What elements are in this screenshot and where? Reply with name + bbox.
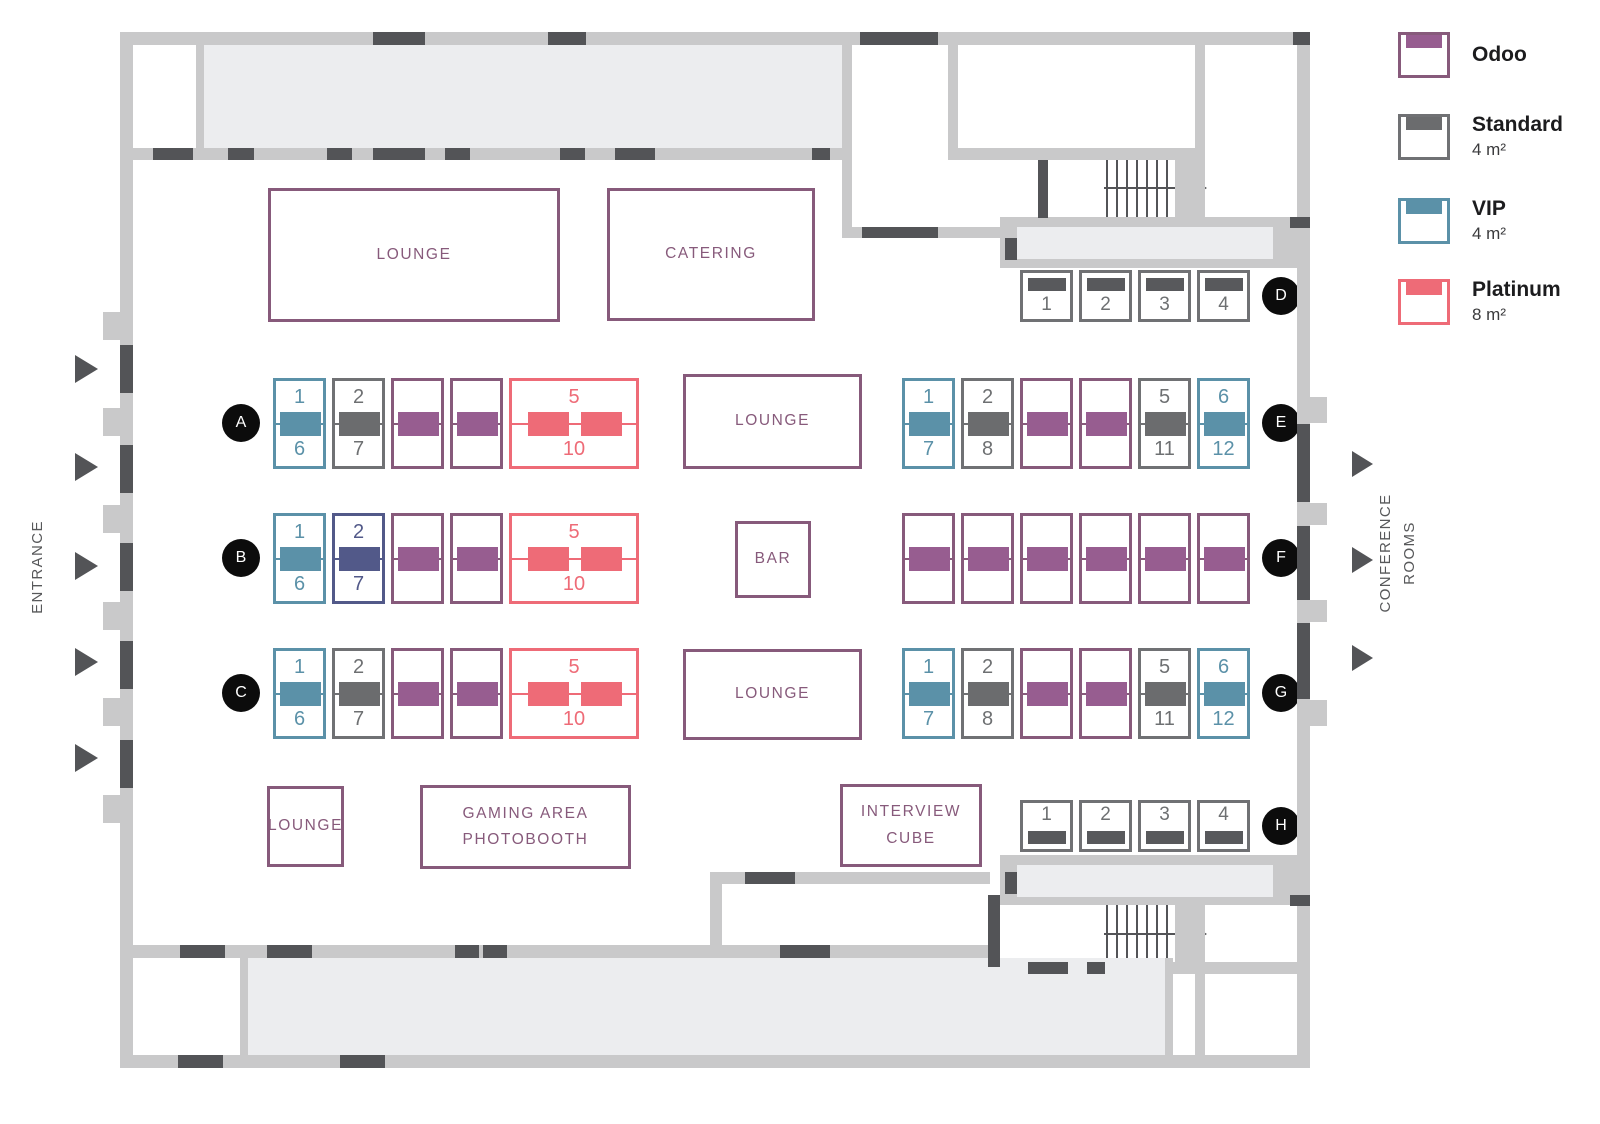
booth-number-bottom: 10 xyxy=(512,438,636,461)
row-letter: H xyxy=(1275,817,1287,835)
room-area xyxy=(204,45,842,148)
booth-bar xyxy=(1145,547,1186,571)
booth-row-f-1[interactable] xyxy=(902,513,955,604)
wall-segment xyxy=(1297,503,1327,525)
row-badge-g: G xyxy=(1262,674,1300,712)
booth-bar xyxy=(1146,278,1184,291)
stairs-top-icon xyxy=(1106,160,1178,218)
conference-text-line1: CONFERENCE xyxy=(1374,493,1398,612)
wall-segment xyxy=(103,795,133,823)
legend-booth-bar xyxy=(1406,117,1442,130)
door-segment xyxy=(988,895,1000,967)
booth-number: 1 xyxy=(1023,294,1070,316)
wall-segment xyxy=(1297,397,1327,423)
door-segment xyxy=(780,945,830,958)
booth-number-bottom: 7 xyxy=(335,708,382,731)
booth-bar xyxy=(1204,547,1245,571)
booth-bar xyxy=(968,682,1009,706)
row-badge-a: A xyxy=(222,404,260,442)
booth-bar xyxy=(581,412,622,436)
area-label: LOUNGE xyxy=(735,408,810,434)
booth-number-bottom: 8 xyxy=(964,708,1011,731)
booth-row-a-1[interactable]: 16 xyxy=(273,378,326,469)
row-badge-f: F xyxy=(1262,539,1300,577)
booth-row-c-4[interactable] xyxy=(450,648,503,739)
door-segment xyxy=(1038,160,1048,218)
booth-bar xyxy=(1146,831,1184,844)
door-segment xyxy=(1005,872,1017,894)
booth-number-bottom: 11 xyxy=(1141,438,1188,461)
door-segment xyxy=(1293,32,1310,45)
wall-segment xyxy=(1297,600,1327,622)
entrance-arrow-icon xyxy=(75,552,98,580)
booth-number-bottom: 12 xyxy=(1200,438,1247,461)
booth-row-a-4[interactable] xyxy=(450,378,503,469)
booth-bar xyxy=(339,412,380,436)
booth-number: 4 xyxy=(1200,804,1247,826)
booth-row-b-1[interactable]: 16 xyxy=(273,513,326,604)
booth-row-b-5[interactable]: 510 xyxy=(509,513,639,604)
legend-text: VIP 4 m² xyxy=(1472,197,1506,244)
booth-bar xyxy=(1204,682,1245,706)
booth-bar xyxy=(398,412,439,436)
booth-number-top: 2 xyxy=(964,656,1011,679)
booth-bar xyxy=(1086,547,1127,571)
conference-rooms-label: CONFERENCE ROOMS xyxy=(1374,493,1422,612)
legend-text: Platinum 8 m² xyxy=(1472,278,1561,325)
wall-segment xyxy=(1297,700,1327,726)
booth-number-bottom: 11 xyxy=(1141,708,1188,731)
legend-size: 8 m² xyxy=(1472,305,1561,325)
booth-bar xyxy=(968,547,1009,571)
booth-row-a-2[interactable]: 27 xyxy=(332,378,385,469)
booth-number-bottom: 12 xyxy=(1200,708,1247,731)
room-area xyxy=(1017,865,1273,897)
conference-arrow-icon xyxy=(1352,645,1373,671)
entrance-arrow-icon xyxy=(75,453,98,481)
booth-number-top: 5 xyxy=(512,656,636,679)
booth-row-g-1[interactable]: 17 xyxy=(902,648,955,739)
booth-row-g-2[interactable]: 28 xyxy=(961,648,1014,739)
area-label: LOUNGE xyxy=(268,813,343,839)
entrance-arrow-icon xyxy=(75,648,98,676)
wall-segment xyxy=(120,945,990,958)
row-letter: B xyxy=(236,549,247,567)
wall-segment xyxy=(103,408,133,436)
door-segment xyxy=(267,945,312,958)
booth-row-f-6[interactable] xyxy=(1197,513,1250,604)
booth-bar xyxy=(909,412,950,436)
area-label: CUBE xyxy=(886,826,935,852)
area-label: GAMING AREA xyxy=(462,801,588,827)
booth-number-top: 5 xyxy=(1141,386,1188,409)
area-lounge-top: LOUNGE xyxy=(268,188,560,322)
booth-row-f-5[interactable] xyxy=(1138,513,1191,604)
booth-row-d-4[interactable]: 4 xyxy=(1197,270,1250,322)
door-segment xyxy=(180,945,225,958)
booth-bar xyxy=(1086,412,1127,436)
row-badge-e: E xyxy=(1262,404,1300,442)
entrance-arrow-icon xyxy=(75,355,98,383)
door-segment xyxy=(228,148,254,160)
booth-bar xyxy=(339,682,380,706)
booth-number-top: 6 xyxy=(1200,386,1247,409)
booth-bar xyxy=(528,682,569,706)
booth-number: 4 xyxy=(1200,294,1247,316)
booth-row-g-3[interactable] xyxy=(1020,648,1073,739)
booth-row-b-4[interactable] xyxy=(450,513,503,604)
door-segment xyxy=(340,1055,385,1068)
area-bar: BAR xyxy=(735,521,811,598)
row-badge-b: B xyxy=(222,539,260,577)
door-segment xyxy=(373,148,425,160)
booth-number-top: 1 xyxy=(276,656,323,679)
booth-bar xyxy=(1205,831,1243,844)
area-gaming-photobooth: GAMING AREA PHOTOBOOTH xyxy=(420,785,631,869)
booth-row-b-2[interactable]: 27 xyxy=(332,513,385,604)
entrance-text: ENTRANCE xyxy=(26,520,50,614)
booth-bar xyxy=(1204,412,1245,436)
legend-name: Odoo xyxy=(1472,43,1527,67)
door-segment xyxy=(120,345,133,393)
row-badge-c: C xyxy=(222,674,260,712)
area-label: LOUNGE xyxy=(735,681,810,707)
booth-number-top: 1 xyxy=(905,386,952,409)
booth-number-bottom: 7 xyxy=(905,708,952,731)
door-segment xyxy=(812,148,830,160)
wall-segment xyxy=(1175,905,1205,962)
booth-number-bottom: 6 xyxy=(276,708,323,731)
legend-size: 4 m² xyxy=(1472,140,1563,160)
conference-text-line2: ROOMS xyxy=(1398,493,1422,612)
door-segment xyxy=(1297,623,1310,699)
booth-number: 3 xyxy=(1141,294,1188,316)
row-letter: E xyxy=(1276,414,1287,432)
booth-row-c-1[interactable]: 16 xyxy=(273,648,326,739)
booth-row-g-4[interactable] xyxy=(1079,648,1132,739)
booth-number-top: 2 xyxy=(335,521,382,544)
floor-plan-canvas: LOUNGE CATERING LOUNGE BAR LOUNGE LOUNGE… xyxy=(0,0,1600,1124)
door-segment xyxy=(560,148,585,160)
booth-number-top: 5 xyxy=(1141,656,1188,679)
booth-row-d-1[interactable]: 1 xyxy=(1020,270,1073,322)
booth-number-bottom: 8 xyxy=(964,438,1011,461)
legend-booth-bar xyxy=(1406,35,1442,48)
area-lounge-small: LOUNGE xyxy=(267,786,344,867)
area-label: CATERING xyxy=(665,241,757,267)
wall-segment xyxy=(120,32,1310,45)
wall-segment xyxy=(948,148,1205,160)
booth-bar xyxy=(1205,278,1243,291)
booth-bar xyxy=(1087,831,1125,844)
booth-bar xyxy=(1028,278,1066,291)
legend-name: Platinum xyxy=(1472,278,1561,302)
wall-segment xyxy=(948,45,958,160)
booth-row-e-1[interactable]: 17 xyxy=(902,378,955,469)
legend-booth-icon xyxy=(1398,114,1450,160)
row-letter: A xyxy=(236,414,247,432)
booth-number: 2 xyxy=(1082,804,1129,826)
conference-arrow-icon xyxy=(1352,451,1373,477)
door-segment xyxy=(483,945,507,958)
booth-row-h-2[interactable]: 2 xyxy=(1079,800,1132,852)
booth-bar xyxy=(280,547,321,571)
row-letter: C xyxy=(235,684,247,702)
booth-row-h-1[interactable]: 1 xyxy=(1020,800,1073,852)
door-segment xyxy=(120,543,133,591)
legend-booth-bar xyxy=(1406,282,1442,295)
booth-row-c-5[interactable]: 510 xyxy=(509,648,639,739)
legend-booth-bar xyxy=(1406,201,1442,214)
booth-bar xyxy=(1027,682,1068,706)
area-lounge-mid: LOUNGE xyxy=(683,374,862,469)
wall-segment xyxy=(103,698,133,726)
legend-booth-icon xyxy=(1398,279,1450,325)
door-segment xyxy=(1087,962,1105,974)
booth-bar xyxy=(968,412,1009,436)
booth-row-g-5[interactable]: 511 xyxy=(1138,648,1191,739)
row-letter: G xyxy=(1275,684,1287,702)
entrance-arrow-icon xyxy=(75,744,98,772)
booth-number-bottom: 7 xyxy=(335,438,382,461)
booth-row-e-6[interactable]: 612 xyxy=(1197,378,1250,469)
booth-bar xyxy=(280,682,321,706)
booth-number-top: 2 xyxy=(335,386,382,409)
area-interview-cube: INTERVIEW CUBE xyxy=(840,784,982,867)
legend-booth-icon xyxy=(1398,32,1450,78)
booth-row-a-5[interactable]: 510 xyxy=(509,378,639,469)
row-letter: F xyxy=(1276,549,1286,567)
row-badge-d: D xyxy=(1262,277,1300,315)
legend-name: VIP xyxy=(1472,197,1506,221)
door-segment xyxy=(862,227,938,238)
booth-row-d-3[interactable]: 3 xyxy=(1138,270,1191,322)
door-segment xyxy=(1290,895,1310,906)
booth-row-c-3[interactable] xyxy=(391,648,444,739)
booth-bar xyxy=(1027,412,1068,436)
booth-row-d-2[interactable]: 2 xyxy=(1079,270,1132,322)
wall-segment xyxy=(1175,150,1205,218)
area-catering: CATERING xyxy=(607,188,815,321)
door-segment xyxy=(1297,526,1310,600)
booth-number-top: 5 xyxy=(512,386,636,409)
wall-segment xyxy=(103,312,133,340)
booth-number-top: 1 xyxy=(276,521,323,544)
booth-number-top: 5 xyxy=(512,521,636,544)
booth-bar xyxy=(1027,547,1068,571)
legend-item-vip: VIP 4 m² xyxy=(1398,197,1506,244)
booth-row-h-4[interactable]: 4 xyxy=(1197,800,1250,852)
door-segment xyxy=(445,148,470,160)
booth-bar xyxy=(457,412,498,436)
booth-bar xyxy=(1145,412,1186,436)
wall-segment xyxy=(1165,958,1173,1055)
wall-segment xyxy=(710,884,722,945)
booth-row-e-4[interactable] xyxy=(1079,378,1132,469)
booth-bar xyxy=(909,682,950,706)
area-label: BAR xyxy=(755,546,792,572)
door-segment xyxy=(455,945,479,958)
wall-segment xyxy=(103,602,133,630)
booth-row-a-3[interactable] xyxy=(391,378,444,469)
door-segment xyxy=(1028,962,1068,974)
entrance-label: ENTRANCE xyxy=(26,520,50,614)
booth-number-bottom: 6 xyxy=(276,438,323,461)
booth-row-e-2[interactable]: 28 xyxy=(961,378,1014,469)
booth-row-b-3[interactable] xyxy=(391,513,444,604)
door-segment xyxy=(120,641,133,689)
booth-row-f-2[interactable] xyxy=(961,513,1014,604)
booth-number-bottom: 7 xyxy=(905,438,952,461)
legend-text: Standard 4 m² xyxy=(1472,113,1563,160)
booth-row-e-5[interactable]: 511 xyxy=(1138,378,1191,469)
legend-item-platinum: Platinum 8 m² xyxy=(1398,278,1561,325)
booth-bar xyxy=(457,682,498,706)
door-segment xyxy=(860,32,938,45)
booth-row-f-4[interactable] xyxy=(1079,513,1132,604)
door-segment xyxy=(120,740,133,788)
booth-number-top: 6 xyxy=(1200,656,1247,679)
conference-arrow-icon xyxy=(1352,547,1373,573)
door-segment xyxy=(1005,238,1017,260)
booth-bar xyxy=(339,547,380,571)
booth-bar xyxy=(909,547,950,571)
booth-number-top: 1 xyxy=(276,386,323,409)
booth-bar xyxy=(581,547,622,571)
legend-name: Standard xyxy=(1472,113,1563,137)
legend-item-odoo: Odoo xyxy=(1398,32,1527,78)
booth-row-h-3[interactable]: 3 xyxy=(1138,800,1191,852)
door-segment xyxy=(548,32,586,45)
door-segment xyxy=(178,1055,223,1068)
row-badge-h: H xyxy=(1262,807,1300,845)
booth-number: 2 xyxy=(1082,294,1129,316)
legend-text: Odoo xyxy=(1472,43,1527,67)
booth-number-bottom: 6 xyxy=(276,573,323,596)
door-segment xyxy=(120,445,133,493)
booth-row-f-3[interactable] xyxy=(1020,513,1073,604)
door-segment xyxy=(373,32,425,45)
booth-number-bottom: 10 xyxy=(512,573,636,596)
door-segment xyxy=(327,148,352,160)
booth-number-bottom: 7 xyxy=(335,573,382,596)
booth-number-top: 2 xyxy=(335,656,382,679)
booth-bar xyxy=(280,412,321,436)
booth-bar xyxy=(1028,831,1066,844)
booth-row-g-6[interactable]: 612 xyxy=(1197,648,1250,739)
booth-number: 1 xyxy=(1023,804,1070,826)
row-letter: D xyxy=(1275,287,1287,305)
wall-segment xyxy=(240,958,248,1055)
booth-bar xyxy=(581,682,622,706)
room-area xyxy=(1017,227,1273,259)
booth-bar xyxy=(398,682,439,706)
wall-segment xyxy=(196,45,204,148)
wall-segment xyxy=(842,45,852,237)
booth-bar xyxy=(1145,682,1186,706)
legend-size: 4 m² xyxy=(1472,224,1506,244)
area-label: INTERVIEW xyxy=(861,799,961,825)
wall-segment xyxy=(103,505,133,533)
booth-number-top: 2 xyxy=(964,386,1011,409)
door-segment xyxy=(745,872,795,884)
booth-row-e-3[interactable] xyxy=(1020,378,1073,469)
door-segment xyxy=(1290,217,1310,228)
area-label: PHOTOBOOTH xyxy=(463,827,589,853)
booth-number: 3 xyxy=(1141,804,1188,826)
wall-segment xyxy=(120,1055,1310,1068)
door-segment xyxy=(615,148,655,160)
legend-booth-icon xyxy=(1398,198,1450,244)
booth-bar xyxy=(457,547,498,571)
booth-row-c-2[interactable]: 27 xyxy=(332,648,385,739)
booth-bar xyxy=(528,412,569,436)
booth-bar xyxy=(1086,682,1127,706)
booth-number-bottom: 10 xyxy=(512,708,636,731)
booth-bar xyxy=(1087,278,1125,291)
booth-bar xyxy=(528,547,569,571)
door-segment xyxy=(1297,424,1310,502)
legend-item-standard: Standard 4 m² xyxy=(1398,113,1563,160)
area-label: LOUNGE xyxy=(376,242,451,268)
booth-bar xyxy=(398,547,439,571)
area-lounge-low: LOUNGE xyxy=(683,649,862,740)
door-segment xyxy=(153,148,193,160)
booth-number-top: 1 xyxy=(905,656,952,679)
stairs-bottom-icon xyxy=(1106,905,1178,965)
